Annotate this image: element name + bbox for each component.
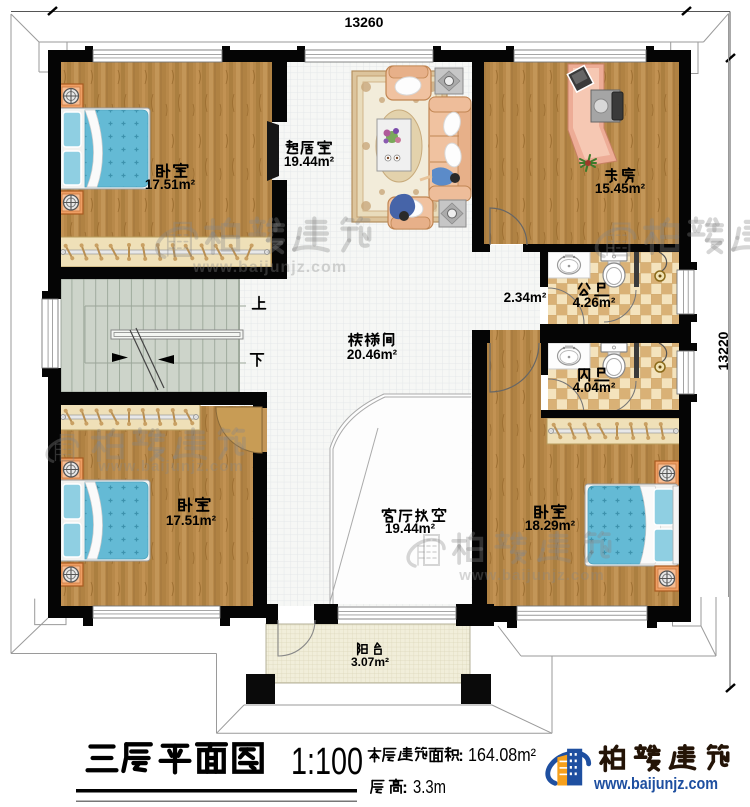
svg-text:19.44m²: 19.44m² — [385, 521, 436, 536]
svg-text:3.3m: 3.3m — [413, 777, 446, 797]
svg-text:164.08m²: 164.08m² — [468, 745, 536, 765]
svg-text:1:100: 1:100 — [291, 741, 363, 783]
svg-text:17.51m²: 17.51m² — [166, 513, 217, 528]
svg-text:www.baijunjz.com: www.baijunjz.com — [97, 458, 243, 475]
svg-text:2.34m²: 2.34m² — [504, 290, 547, 305]
svg-text::: : — [458, 746, 464, 765]
svg-text:4.26m²: 4.26m² — [573, 295, 616, 310]
svg-text:www.baijunjz.com: www.baijunjz.com — [593, 775, 718, 793]
svg-text:20.46m²: 20.46m² — [347, 347, 398, 362]
svg-text:17.51m²: 17.51m² — [145, 177, 196, 192]
svg-text:19.44m²: 19.44m² — [284, 154, 335, 169]
svg-text::: : — [402, 778, 408, 797]
svg-text:15.45m²: 15.45m² — [595, 181, 646, 196]
svg-text:13260: 13260 — [345, 14, 384, 30]
svg-text:4.04m²: 4.04m² — [573, 380, 616, 395]
svg-text:3.07m²: 3.07m² — [351, 655, 389, 669]
svg-text:18.29m²: 18.29m² — [525, 518, 576, 533]
svg-text:www.baijunjz.com: www.baijunjz.com — [192, 259, 347, 276]
svg-text:www.baijunjz.com: www.baijunjz.com — [458, 567, 604, 584]
